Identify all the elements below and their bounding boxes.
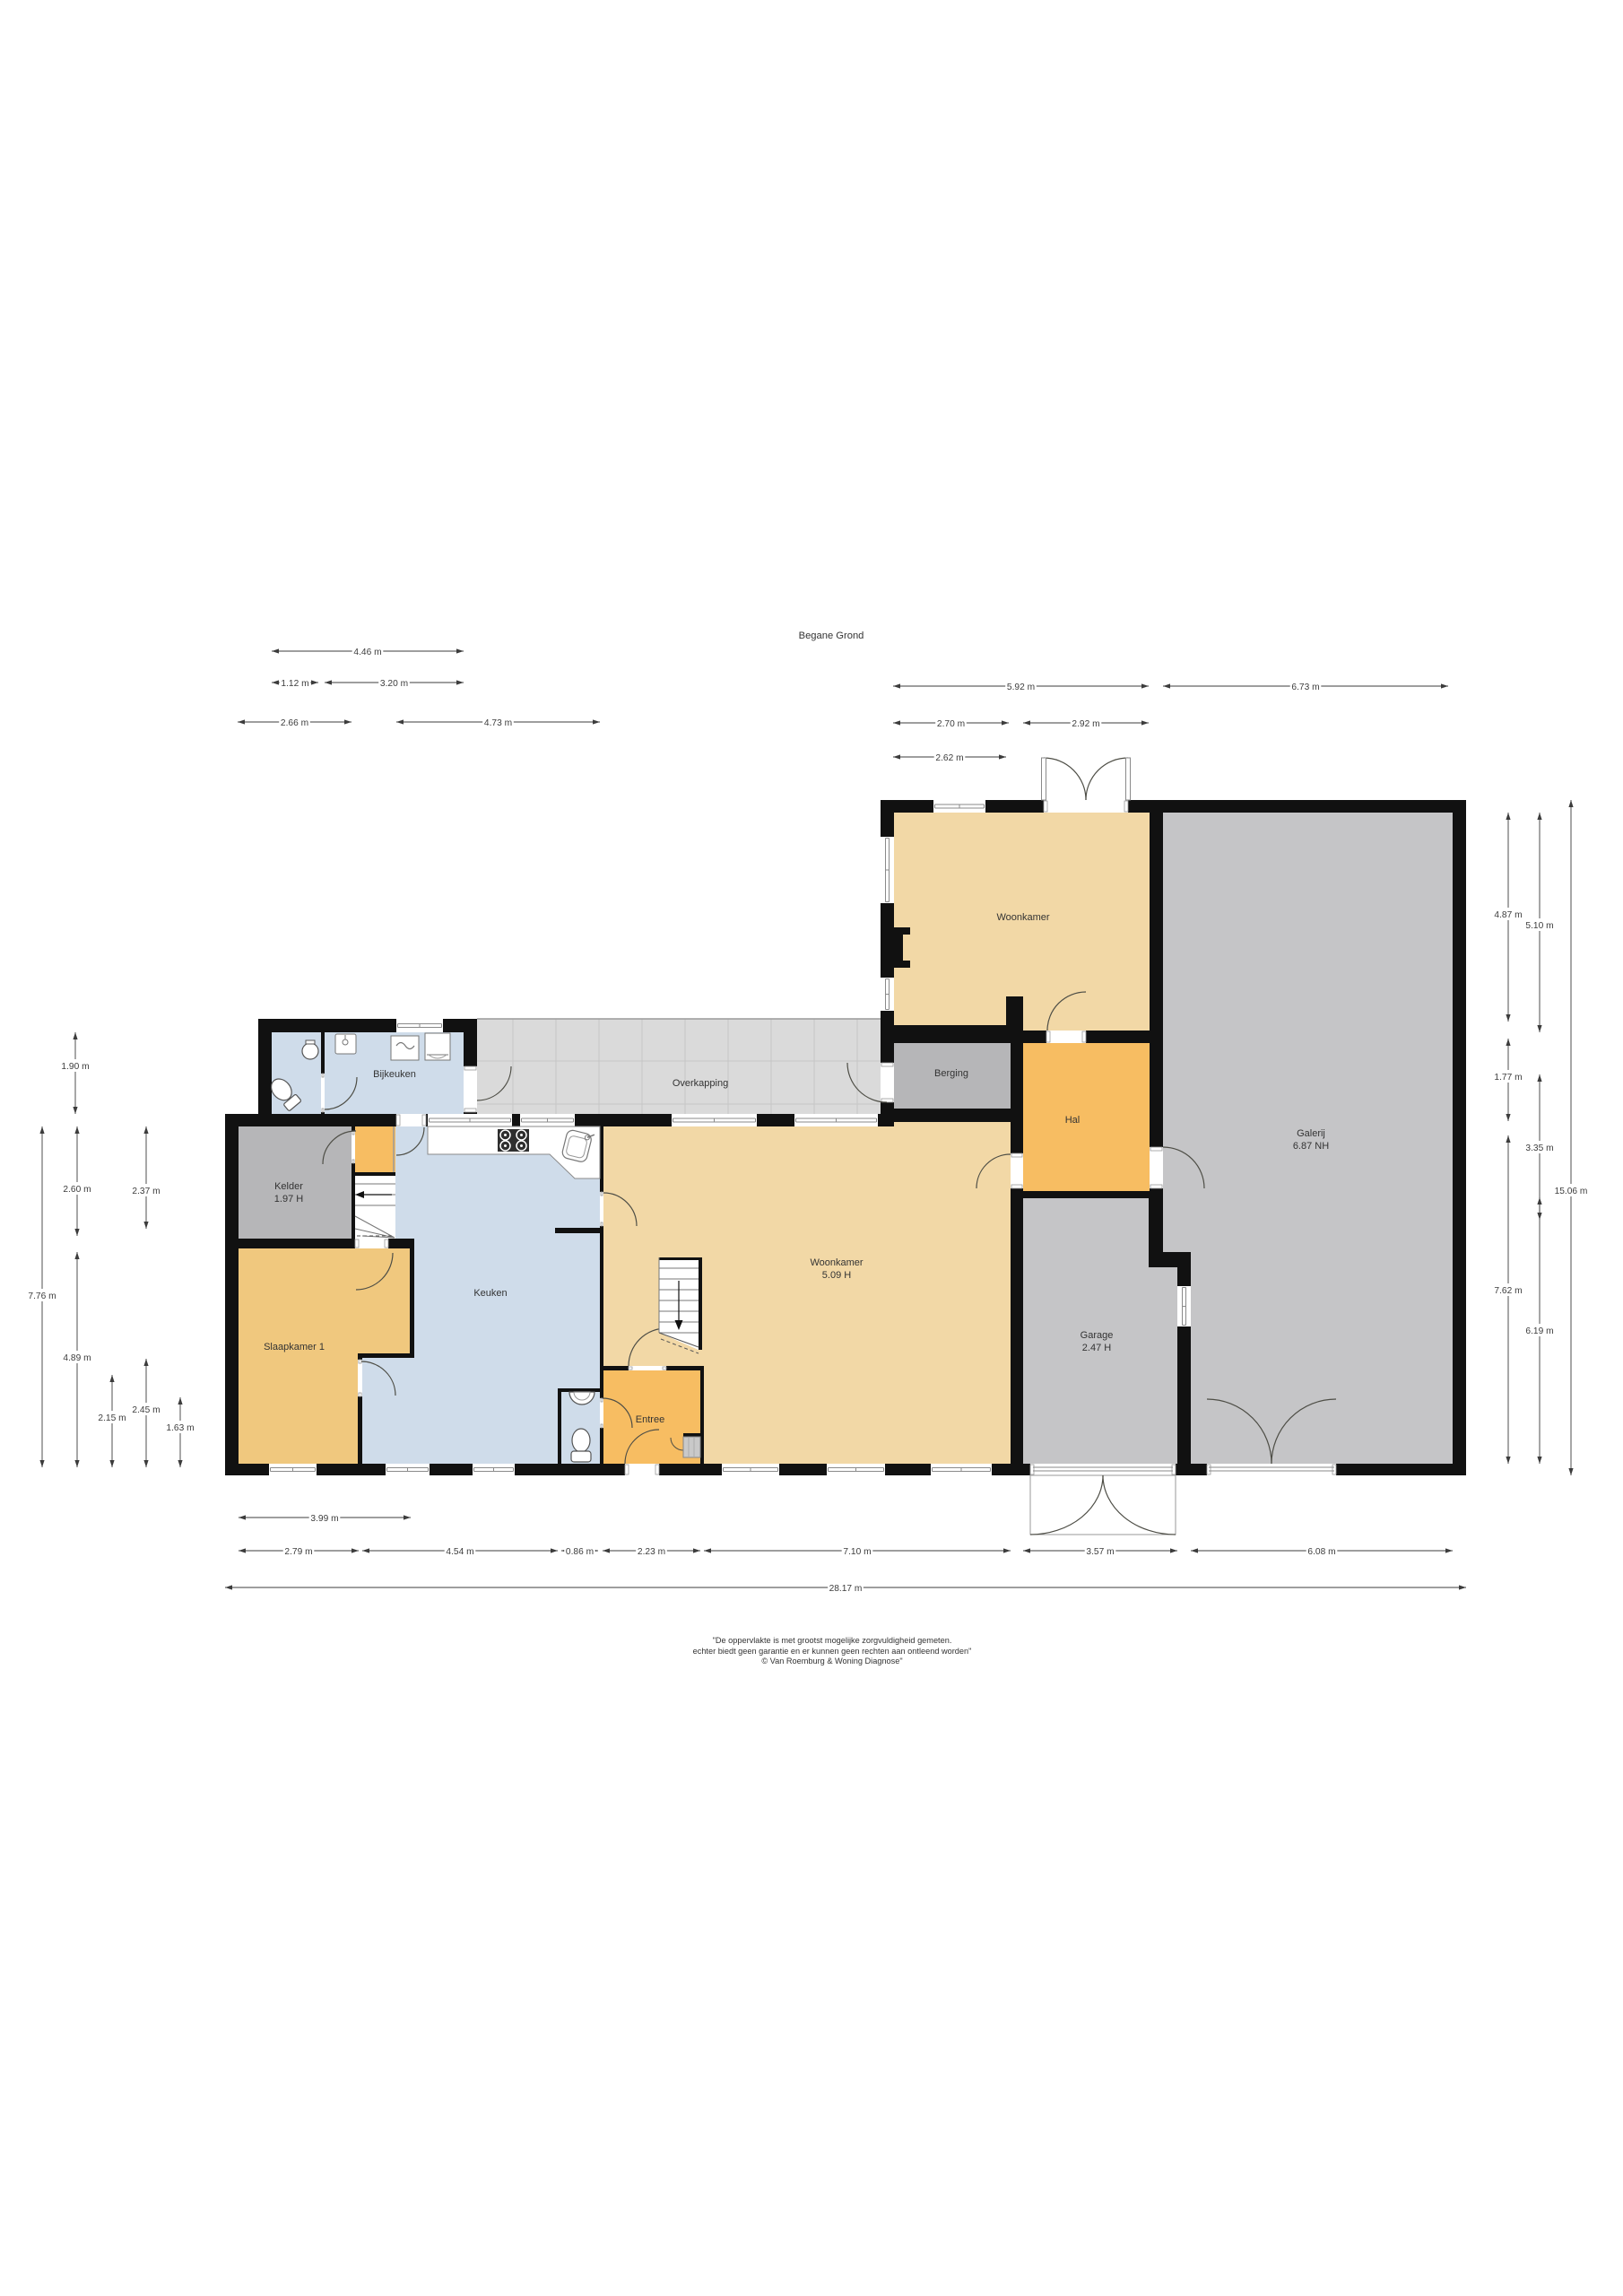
svg-text:2.70 m: 2.70 m	[937, 719, 965, 729]
svg-text:1.63 m: 1.63 m	[166, 1423, 194, 1433]
svg-text:4.46 m: 4.46 m	[353, 648, 381, 657]
svg-text:Galerij: Galerij	[1297, 1128, 1325, 1139]
svg-text:28.17 m: 28.17 m	[829, 1584, 863, 1594]
svg-text:Garage: Garage	[1081, 1330, 1114, 1341]
svg-text:Bijkeuken: Bijkeuken	[373, 1069, 416, 1080]
svg-text:4.87 m: 4.87 m	[1494, 910, 1522, 920]
svg-text:Keuken: Keuken	[473, 1288, 507, 1299]
svg-text:7.10 m: 7.10 m	[843, 1547, 871, 1557]
svg-text:6.19 m: 6.19 m	[1525, 1326, 1553, 1336]
svg-text:echter biedt geen garantie en: echter biedt geen garantie en er kunnen …	[693, 1647, 972, 1656]
svg-text:7.62 m: 7.62 m	[1494, 1286, 1522, 1296]
svg-text:1.12 m: 1.12 m	[281, 679, 308, 689]
svg-text:15.06 m: 15.06 m	[1555, 1187, 1588, 1196]
svg-text:Woonkamer: Woonkamer	[996, 912, 1049, 923]
svg-text:5.09 H: 5.09 H	[822, 1270, 851, 1281]
svg-text:2.79 m: 2.79 m	[284, 1547, 312, 1557]
svg-text:Entree: Entree	[636, 1414, 664, 1425]
svg-text:6.73 m: 6.73 m	[1291, 683, 1319, 692]
svg-text:7.76 m: 7.76 m	[28, 1291, 56, 1301]
svg-text:1.97 H: 1.97 H	[274, 1194, 303, 1205]
svg-text:2.45 m: 2.45 m	[132, 1405, 160, 1415]
svg-text:1.90 m: 1.90 m	[61, 1062, 89, 1072]
svg-text:Overkapping: Overkapping	[673, 1078, 728, 1089]
svg-text:4.89 m: 4.89 m	[63, 1353, 91, 1363]
svg-text:5.10 m: 5.10 m	[1525, 921, 1553, 931]
svg-text:Slaapkamer 1: Slaapkamer 1	[264, 1342, 325, 1352]
svg-text:0.86 m: 0.86 m	[566, 1547, 594, 1557]
svg-text:3.20 m: 3.20 m	[380, 679, 408, 689]
svg-text:© Van Roemburg & Woning Diagno: © Van Roemburg & Woning Diagnose"	[761, 1657, 902, 1665]
svg-text:6.87 NH: 6.87 NH	[1293, 1141, 1329, 1152]
svg-text:2.47 H: 2.47 H	[1082, 1343, 1111, 1353]
svg-text:2.60 m: 2.60 m	[63, 1185, 91, 1195]
svg-text:Begane Grond: Begane Grond	[799, 631, 864, 641]
svg-text:4.73 m: 4.73 m	[484, 718, 512, 728]
svg-text:"De oppervlakte is met grootst: "De oppervlakte is met grootst mogelijke…	[713, 1636, 952, 1645]
svg-text:6.08 m: 6.08 m	[1307, 1547, 1335, 1557]
svg-text:3.99 m: 3.99 m	[310, 1514, 338, 1524]
svg-text:2.23 m: 2.23 m	[638, 1547, 665, 1557]
svg-text:Hal: Hal	[1065, 1115, 1081, 1126]
svg-text:2.66 m: 2.66 m	[281, 718, 308, 728]
svg-text:2.92 m: 2.92 m	[1072, 719, 1099, 729]
svg-text:Woonkamer: Woonkamer	[810, 1257, 863, 1268]
svg-text:Berging: Berging	[934, 1068, 968, 1079]
svg-text:2.62 m: 2.62 m	[935, 753, 963, 763]
svg-text:4.54 m: 4.54 m	[446, 1547, 473, 1557]
svg-text:2.37 m: 2.37 m	[132, 1187, 160, 1196]
svg-text:5.92 m: 5.92 m	[1007, 683, 1035, 692]
svg-text:Kelder: Kelder	[274, 1181, 303, 1192]
svg-text:1.77 m: 1.77 m	[1494, 1073, 1522, 1083]
svg-text:3.35 m: 3.35 m	[1525, 1144, 1553, 1153]
svg-text:3.57 m: 3.57 m	[1086, 1547, 1114, 1557]
svg-text:2.15 m: 2.15 m	[98, 1413, 126, 1423]
